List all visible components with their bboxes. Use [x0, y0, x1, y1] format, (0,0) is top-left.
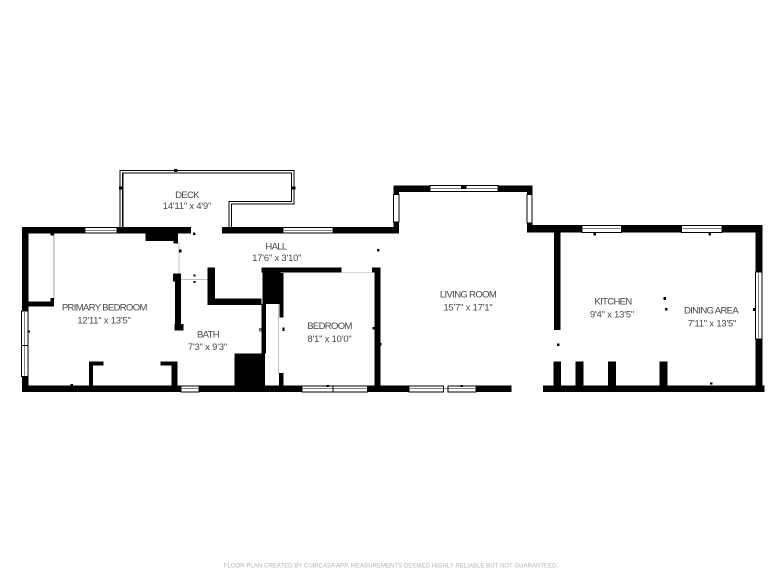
svg-text:BATH: BATH	[197, 330, 220, 341]
svg-text:DINING AREA: DINING AREA	[684, 306, 739, 317]
svg-text:FLOOR PLAN CREATED BY CUBICASA: FLOOR PLAN CREATED BY CUBICASA APP. MEAS…	[224, 563, 559, 569]
svg-text:7'11" x 13'5": 7'11" x 13'5"	[688, 319, 736, 329]
svg-text:15'7" x 17'1": 15'7" x 17'1"	[443, 303, 492, 313]
svg-text:17'6" x 3'10": 17'6" x 3'10"	[252, 253, 301, 263]
svg-text:14'11" x 4'9": 14'11" x 4'9"	[163, 201, 211, 211]
svg-text:HALL: HALL	[265, 241, 287, 252]
svg-text:12'11" x 13'5": 12'11" x 13'5"	[77, 315, 130, 325]
svg-text:DECK: DECK	[175, 190, 200, 201]
svg-text:PRIMARY BEDROOM: PRIMARY BEDROOM	[62, 303, 148, 314]
svg-text:7'3" x 9'3": 7'3" x 9'3"	[188, 342, 227, 352]
svg-text:8'1" x 10'0": 8'1" x 10'0"	[307, 334, 351, 344]
svg-text:KITCHEN: KITCHEN	[594, 297, 632, 308]
svg-text:9'4" x 13'5": 9'4" x 13'5"	[590, 310, 634, 320]
svg-text:BEDROOM: BEDROOM	[307, 321, 352, 332]
svg-text:LIVING ROOM: LIVING ROOM	[440, 290, 497, 301]
